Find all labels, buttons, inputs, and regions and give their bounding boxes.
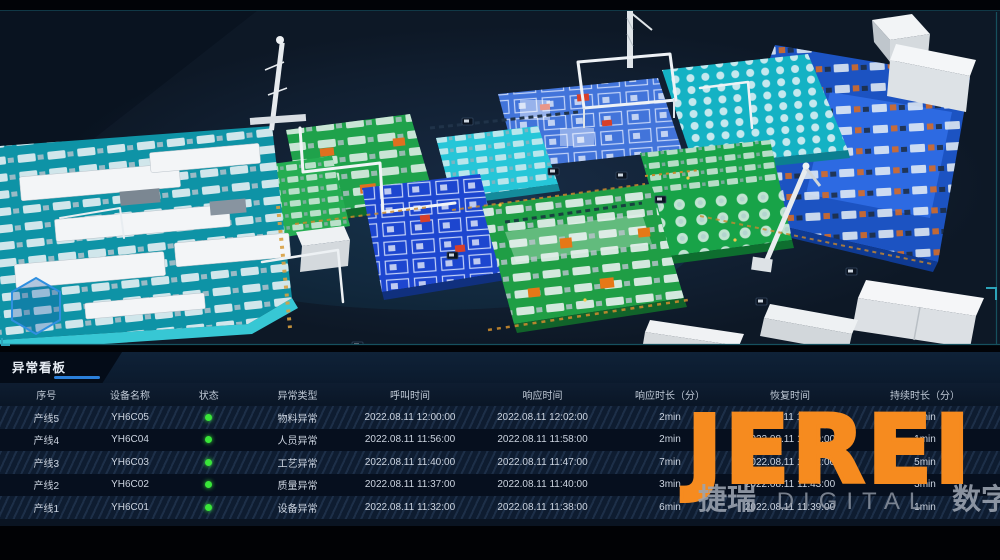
- cell-call: 2022.08.11 11:56:00: [345, 434, 475, 445]
- panel-title-bar: 异常看板: [0, 352, 1000, 383]
- col-header-call-time: 呼叫时间: [345, 387, 475, 402]
- cell-device: YH6C01: [93, 502, 168, 513]
- status-dot: [168, 457, 251, 468]
- col-header-recover-time: 恢复时间: [730, 387, 850, 402]
- cell-response: 2022.08.11 12:02:00: [475, 412, 610, 423]
- status-dot: [168, 502, 251, 513]
- title-accent-underline: [54, 376, 100, 379]
- col-header-status: 状态: [168, 387, 251, 402]
- cell-seq: 产线4: [0, 432, 93, 447]
- cell-duration: 3min: [850, 479, 1000, 490]
- exception-board-panel: 异常看板 序号 设备名称 状态 异常类型 呼叫时间 响应时间 响应时长（分） 恢…: [0, 352, 1000, 560]
- cell-response_min: 2min: [610, 412, 730, 423]
- table-row[interactable]: 产线4YH6C04人员异常2022.08.11 11:56:002022.08.…: [0, 429, 1000, 452]
- panel-title: 异常看板: [12, 357, 66, 376]
- table-row[interactable]: 产线1YH6C01设备异常2022.08.11 11:32:002022.08.…: [0, 496, 1000, 519]
- platform-green-center: [482, 184, 687, 333]
- cell-duration: 3min: [850, 412, 1000, 423]
- cell-type: 人员异常: [250, 432, 345, 447]
- table-body: 产线5YH6C05物料异常2022.08.11 12:00:002022.08.…: [0, 406, 1000, 519]
- factory-3d-scene[interactable]: [0, 0, 1000, 352]
- cell-duration: 1min: [850, 502, 1000, 513]
- cell-device: YH6C03: [93, 457, 168, 468]
- col-header-seq: 序号: [0, 387, 93, 402]
- table-row[interactable]: 产线2YH6C02质量异常2022.08.11 11:37:002022.08.…: [0, 474, 1000, 497]
- cell-device: YH6C02: [93, 479, 168, 490]
- cell-type: 设备异常: [250, 500, 345, 515]
- table-row[interactable]: 产线5YH6C05物料异常2022.08.11 12:00:002022.08.…: [0, 406, 1000, 429]
- cell-call: 2022.08.11 11:37:00: [345, 479, 475, 490]
- col-header-response-min: 响应时长（分）: [610, 387, 730, 402]
- cell-call: 2022.08.11 11:40:00: [345, 457, 475, 468]
- cell-response_min: 3min: [610, 479, 730, 490]
- cell-type: 质量异常: [250, 477, 345, 492]
- col-header-device: 设备名称: [93, 387, 168, 402]
- cell-response: 2022.08.11 11:47:00: [475, 457, 610, 468]
- cell-response: 2022.08.11 11:38:00: [475, 502, 610, 513]
- status-dot: [168, 412, 251, 423]
- cell-duration: 5min: [850, 457, 1000, 468]
- dashboard-screen: 异常看板 序号 设备名称 状态 异常类型 呼叫时间 响应时间 响应时长（分） 恢…: [0, 0, 1000, 560]
- cell-type: 物料异常: [250, 410, 345, 425]
- cell-response_min: 2min: [610, 434, 730, 445]
- cell-duration: 1min: [850, 434, 1000, 445]
- col-header-duration: 持续时长（分）: [850, 387, 1000, 402]
- platform-blue-royal: [362, 174, 506, 300]
- cell-device: YH6C05: [93, 412, 168, 423]
- cell-response: 2022.08.11 11:40:00: [475, 479, 610, 490]
- cell-call: 2022.08.11 12:00:00: [345, 412, 475, 423]
- cell-type: 工艺异常: [250, 455, 345, 470]
- cell-recover: 2022.08.11 12:05:00: [730, 412, 850, 423]
- cell-response_min: 6min: [610, 502, 730, 513]
- cell-recover: 2022.08.11 11:59:00: [730, 434, 850, 445]
- cell-response_min: 7min: [610, 457, 730, 468]
- col-header-type: 异常类型: [250, 387, 345, 402]
- cell-seq: 产线1: [0, 500, 93, 515]
- cell-seq: 产线3: [0, 455, 93, 470]
- cell-recover: 2022.08.11 11:43:00: [730, 479, 850, 490]
- table-header-row: 序号 设备名称 状态 异常类型 呼叫时间 响应时间 响应时长（分） 恢复时间 持…: [0, 383, 1000, 406]
- table-row[interactable]: 产线3YH6C03工艺异常2022.08.11 11:40:002022.08.…: [0, 451, 1000, 474]
- cell-recover: 2022.08.11 11:39:00: [730, 502, 850, 513]
- cell-call: 2022.08.11 11:32:00: [345, 502, 475, 513]
- status-dot: [168, 434, 251, 445]
- col-header-response-time: 响应时间: [475, 387, 610, 402]
- cell-seq: 产线5: [0, 410, 93, 425]
- panel-footer-strip: [0, 519, 1000, 526]
- cell-recover: 2022.08.11 11:52:00: [730, 457, 850, 468]
- status-dot: [168, 479, 251, 490]
- cell-device: YH6C04: [93, 434, 168, 445]
- cell-response: 2022.08.11 11:58:00: [475, 434, 610, 445]
- cell-seq: 产线2: [0, 477, 93, 492]
